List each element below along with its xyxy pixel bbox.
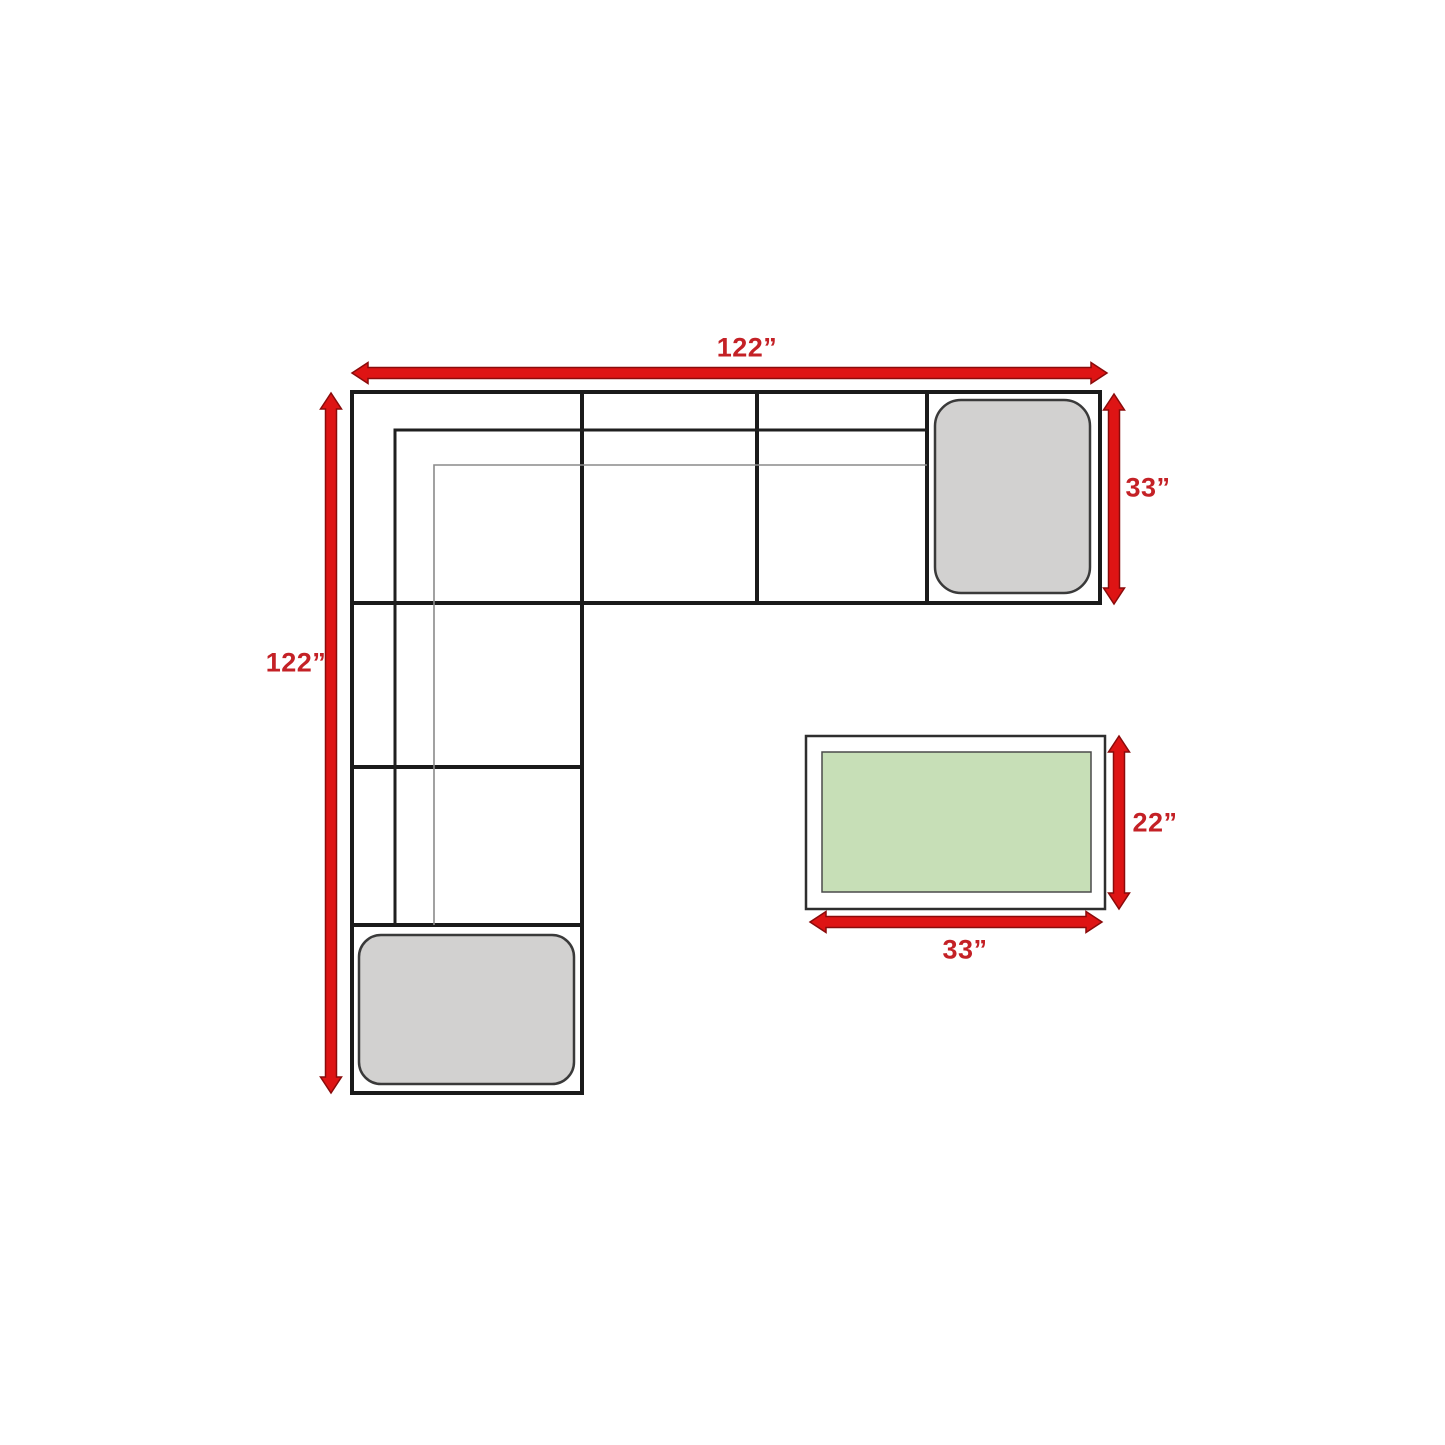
- sofa-width-arrow: [352, 363, 1107, 384]
- chaise-cushion: [935, 400, 1090, 593]
- sofa-depth-arrow: [321, 393, 342, 1093]
- sofa-left-seat-2: [352, 767, 582, 925]
- coffee-table-top: [822, 752, 1091, 892]
- sofa-top-seat-1: [582, 392, 757, 603]
- chaise-depth-arrow: [1104, 394, 1125, 604]
- sofa-left-seat-1: [352, 603, 582, 767]
- dimension-diagram: 122” 122” 33” 22” 33”: [0, 0, 1445, 1445]
- table-depth-arrow: [1109, 736, 1130, 909]
- table-depth-label: 22”: [1132, 808, 1177, 839]
- table-width-label: 33”: [942, 935, 987, 966]
- coffee-table: [806, 736, 1105, 909]
- ottoman-cushion: [359, 935, 574, 1084]
- table-width-arrow: [810, 912, 1102, 933]
- chaise-depth-label: 33”: [1125, 473, 1170, 504]
- sofa-depth-label: 122”: [266, 648, 327, 679]
- sofa-top-seat-2: [757, 392, 927, 603]
- sofa-width-label: 122”: [717, 333, 778, 364]
- sofa-corner-section: [352, 392, 582, 603]
- sectional-diagram-svg: [0, 0, 1445, 1445]
